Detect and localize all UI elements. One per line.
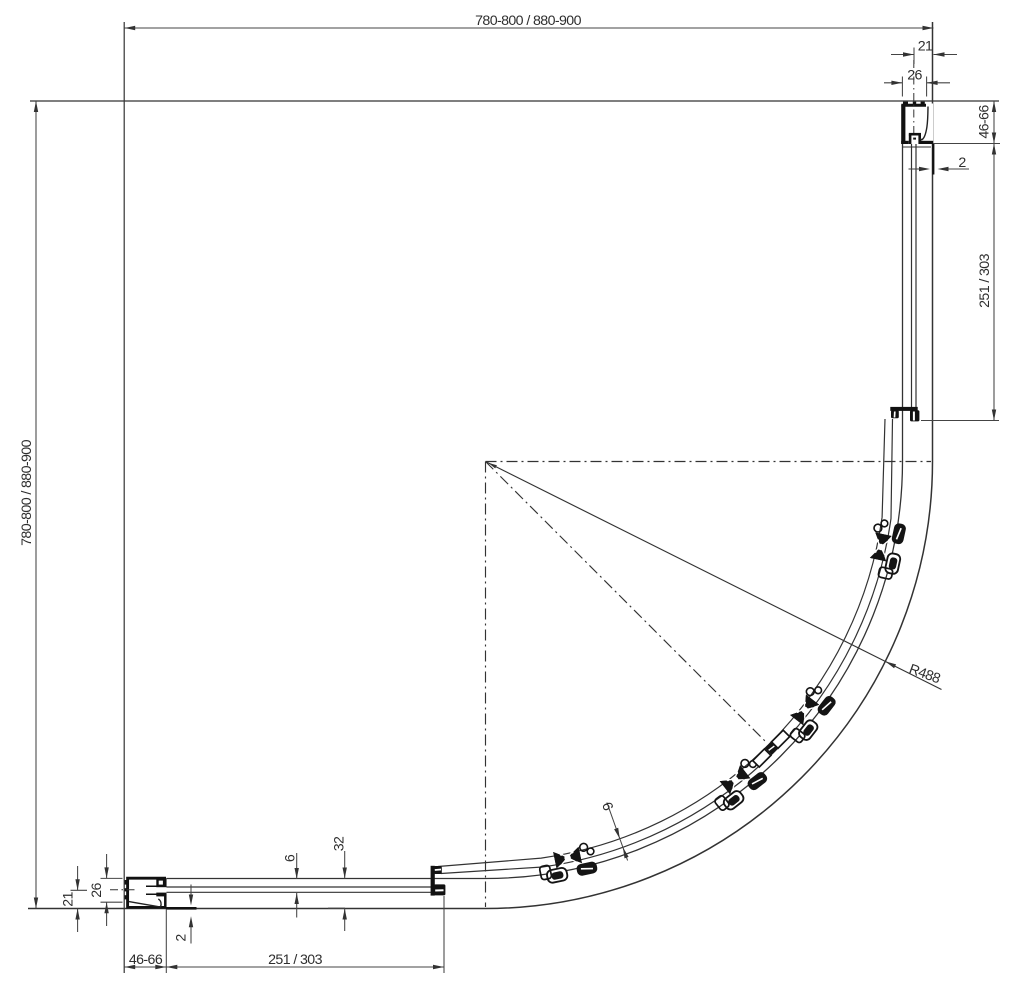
- svg-text:9: 9: [600, 800, 618, 813]
- svg-text:251 / 303: 251 / 303: [977, 253, 993, 307]
- svg-text:2: 2: [958, 155, 966, 171]
- svg-text:2: 2: [174, 934, 190, 942]
- svg-text:R488: R488: [907, 661, 943, 687]
- svg-text:251 / 303: 251 / 303: [268, 952, 322, 968]
- svg-text:780-800 / 880-900: 780-800 / 880-900: [19, 439, 35, 545]
- svg-text:32: 32: [332, 836, 348, 851]
- svg-text:46-66: 46-66: [977, 105, 993, 139]
- svg-text:6: 6: [283, 854, 299, 862]
- svg-text:780-800 / 880-900: 780-800 / 880-900: [475, 13, 581, 29]
- svg-text:26: 26: [89, 883, 105, 898]
- svg-text:26: 26: [907, 68, 922, 84]
- svg-text:46-66: 46-66: [129, 952, 163, 968]
- svg-text:21: 21: [918, 39, 933, 55]
- svg-text:21: 21: [61, 892, 77, 907]
